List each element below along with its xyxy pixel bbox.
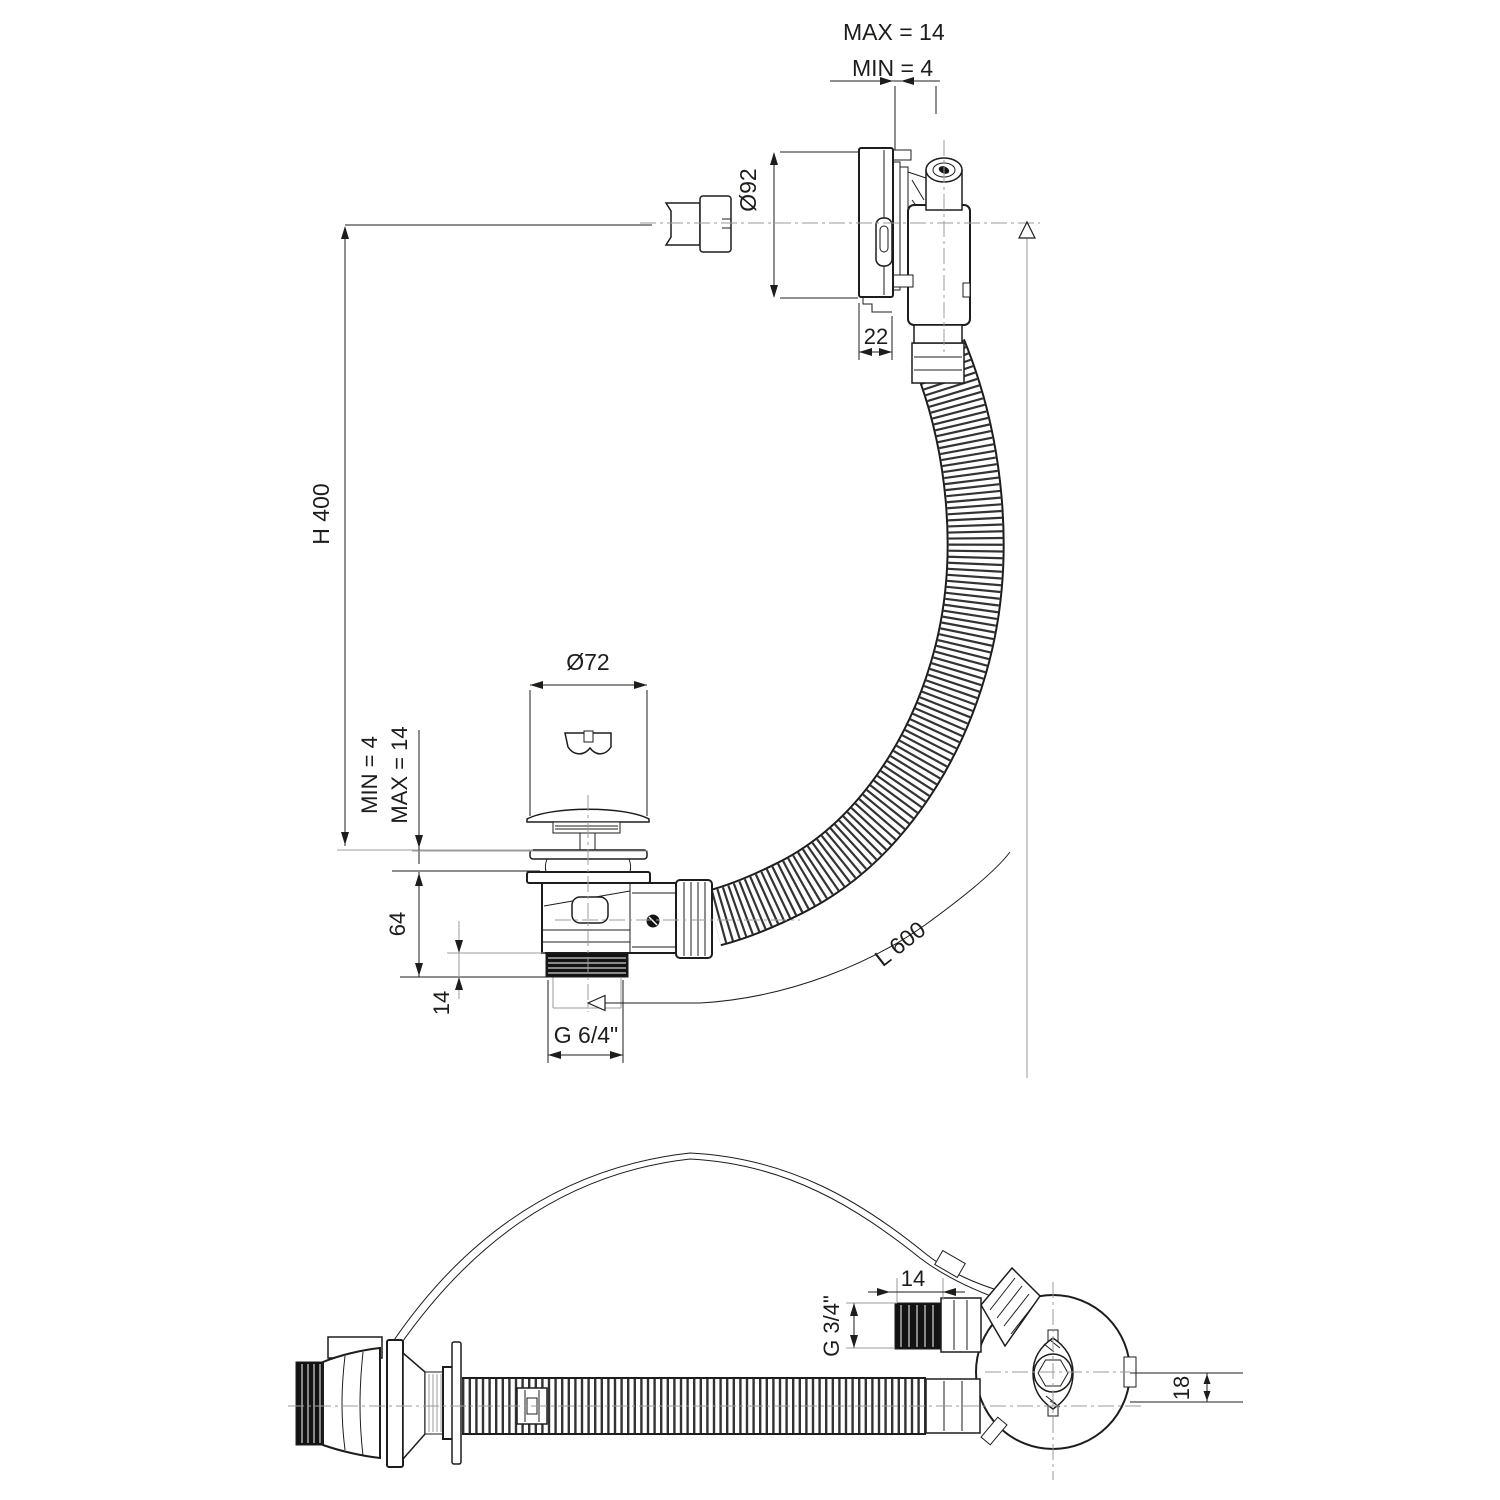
dim-waste-thread-length-label: 14	[429, 991, 454, 1015]
dim-overflow-thread: G 3/4"	[819, 1295, 897, 1357]
datum-arrow	[1019, 222, 1035, 238]
flexible-hose	[714, 350, 976, 918]
dim-install-height-label: H 400	[308, 483, 334, 544]
drawing-canvas: MAX = 14 MIN = 4 Ø92 22	[0, 0, 1500, 1500]
plan-view: 14 G 3/4" 18	[288, 1153, 1243, 1480]
nipple-thread	[895, 1303, 941, 1349]
dim-plug-max-label: MAX = 14	[387, 726, 412, 823]
dim-waste-height-label: 64	[385, 912, 410, 936]
dim-waste-thread-label: G 6/4"	[554, 1022, 618, 1048]
waste-thread	[546, 953, 628, 977]
detached-knob	[666, 196, 731, 252]
dim-waste-thread-length: 14	[429, 921, 545, 1015]
dim-nipple-length-label: 14	[901, 1266, 925, 1291]
dim-max-label: MAX = 14	[843, 19, 945, 45]
dim-overflow-depth-label: 22	[864, 324, 888, 349]
dim-rim-thickness: 18	[1130, 1373, 1243, 1402]
cross-key	[565, 731, 611, 754]
technical-drawing-page: MAX = 14 MIN = 4 Ø92 22	[0, 0, 1500, 1500]
dim-hose-length-label: L 600	[870, 916, 931, 971]
dim-overflow-diameter-label: Ø92	[735, 168, 761, 211]
hose-nut	[676, 880, 712, 958]
dim-waste-thread: G 6/4"	[548, 980, 623, 1063]
dim-overflow-thread-label: G 3/4"	[819, 1295, 844, 1357]
waste-body-side	[296, 1337, 461, 1467]
waste-thread-side	[296, 1362, 323, 1445]
dim-wall-thickness: MAX = 14 MIN = 4	[830, 19, 945, 150]
dim-waste-height: 64	[385, 871, 556, 977]
dim-plug-diameter-label: Ø72	[566, 649, 609, 675]
waste-assembly	[527, 731, 712, 1008]
overflow-assembly	[666, 148, 970, 383]
dim-min-label: MIN = 4	[852, 55, 933, 81]
dim-plug-min-label: MIN = 4	[357, 736, 382, 814]
dim-rim-thickness-label: 18	[1169, 1376, 1194, 1400]
dim-overflow-diameter: Ø92	[735, 152, 858, 298]
side-view: MAX = 14 MIN = 4 Ø92 22	[308, 19, 1040, 1078]
